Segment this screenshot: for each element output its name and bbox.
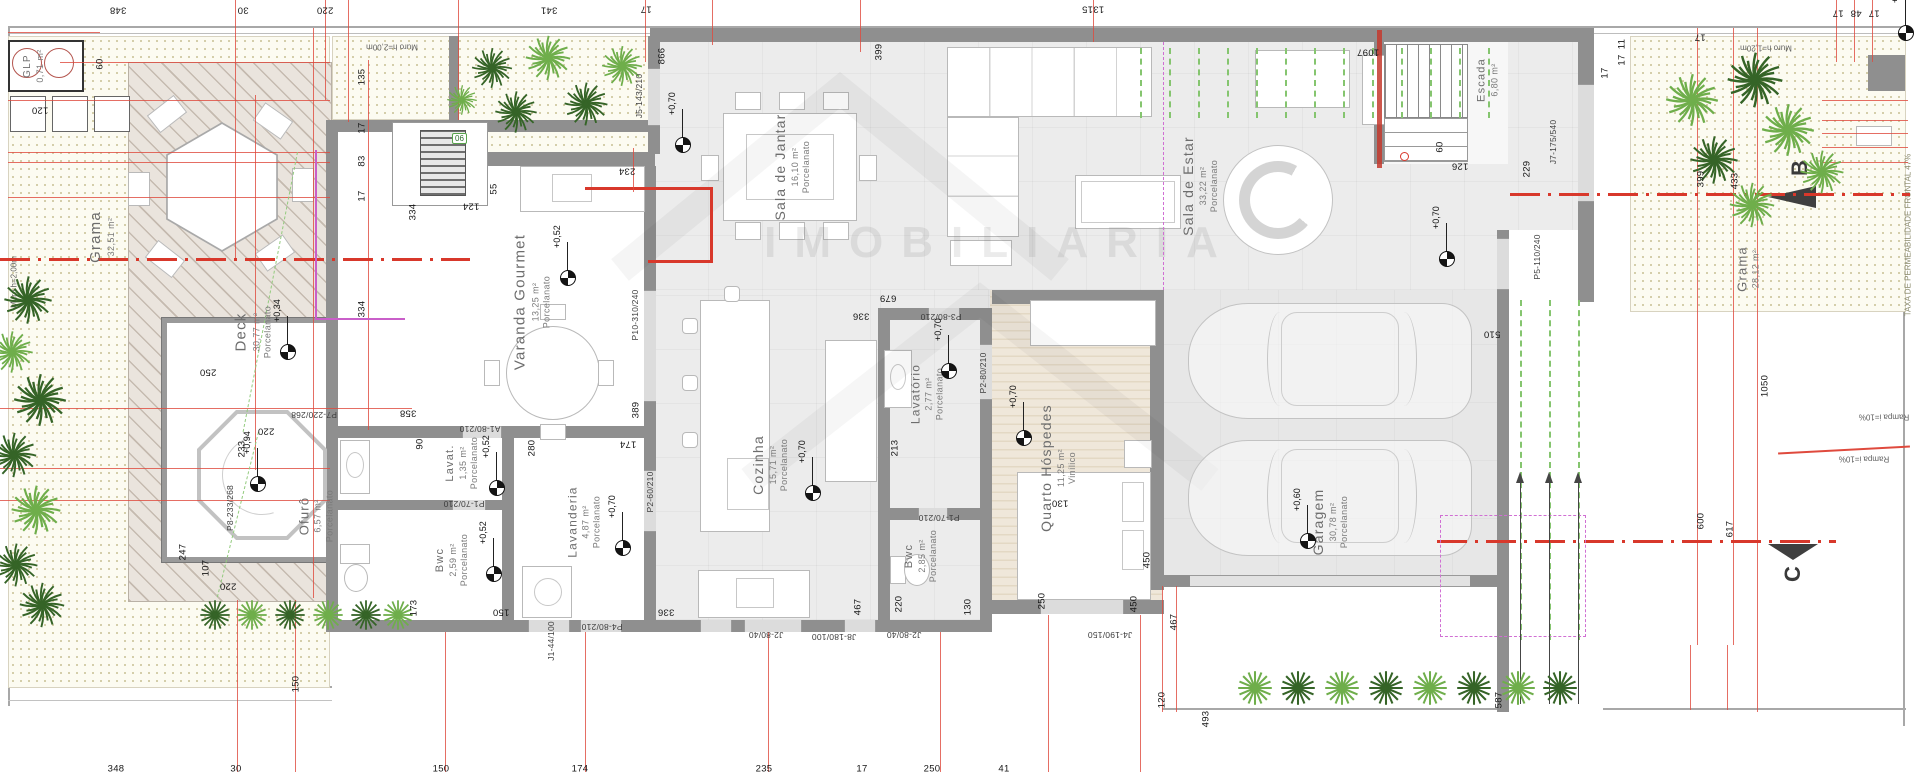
dimension-line <box>1727 645 1728 710</box>
dimension-label: 17 <box>1600 67 1611 78</box>
opening-label: P1-70/210 <box>918 513 959 523</box>
palm-tree-icon <box>1657 65 1727 135</box>
section-c-label: C <box>1780 566 1806 582</box>
dimension-label: 220 <box>258 426 275 437</box>
bush-icon <box>1406 664 1454 712</box>
stair-return <box>1384 118 1468 162</box>
dimension-line <box>8 100 330 101</box>
level-value: +0,70 <box>797 440 807 463</box>
wall <box>326 132 338 632</box>
room-area: 30,78 m² <box>1328 489 1339 556</box>
room-floor-finish: Porcelanato <box>592 486 603 557</box>
projection-outline <box>1440 515 1586 637</box>
section-line <box>0 258 470 261</box>
level-value: +0,94 <box>242 431 252 454</box>
room-floor-finish: Porcelanato <box>1209 136 1220 236</box>
dimension-line <box>1690 645 1691 710</box>
room-name: Sala de Estar <box>1180 136 1198 236</box>
level-value: +0,70 <box>1431 206 1441 229</box>
dimension-label: 30 <box>237 5 248 16</box>
dimension-label: 348 <box>110 5 127 16</box>
room-label: Escada6,80 m² <box>1476 58 1501 102</box>
room-floor-finish: Porcelanato <box>324 490 335 542</box>
room-label: GLP0,71 m² <box>22 49 46 82</box>
level-value: +0,9 <box>1890 0 1900 3</box>
planting-guide-line <box>1430 48 1432 118</box>
dimension-label: 107 <box>201 560 212 577</box>
window-j2 <box>844 620 876 632</box>
dimension-label: 135 <box>357 69 368 86</box>
dimension-label: 41 <box>998 764 1009 774</box>
room-area: 0,71 m² <box>35 49 46 82</box>
dimension-label: 341 <box>541 5 558 16</box>
dimension-label: 334 <box>408 204 419 221</box>
section-c-arrow-icon <box>1768 544 1818 560</box>
dimension-label: 55 <box>489 183 500 194</box>
dimension-label: 83 <box>357 155 368 166</box>
wall <box>502 438 514 632</box>
dimension-label: 600 <box>1696 513 1707 530</box>
room-area: 1,35 m² <box>458 437 469 489</box>
opening-label: J7-175/540 <box>1548 120 1558 165</box>
dimension-label: 126 <box>1452 161 1469 172</box>
washer-door <box>534 578 562 606</box>
wall-height-label: Muro h=2,00m <box>366 43 418 52</box>
furniture-tag: 06 <box>452 133 467 144</box>
dimension-label: 17 <box>1617 54 1628 65</box>
room-area: 6,80 m² <box>1489 58 1500 102</box>
dimension-label: 617 <box>1725 521 1736 538</box>
planting-guide-line <box>1198 48 1200 118</box>
room-floor-finish: Porcelanato <box>928 530 939 582</box>
room-name: Deck <box>232 306 251 358</box>
dimension-label: 17 <box>1868 8 1879 19</box>
dimension-label: 493 <box>1201 711 1212 728</box>
level-value: +0,52 <box>552 225 562 248</box>
dimension-label: 173 <box>409 600 420 617</box>
dimension-label: 60 <box>95 58 106 69</box>
room-area: 2,59 m² <box>448 534 459 586</box>
room-label: Grama32,51 m² <box>87 211 117 263</box>
room-label: Bwc2,59 m²Porcelanato <box>434 534 470 586</box>
room-label: Ofurô6,57 m²Porcelanato <box>297 490 336 542</box>
room-floor-finish: Porcelanato <box>459 534 470 586</box>
room-label: Varanda Gourmet13,25 m²Porcelanato <box>511 234 552 370</box>
dimension-label: 280 <box>527 440 538 457</box>
room-label: Quarto Hóspedes11,25 m²Vinílico <box>1038 404 1078 532</box>
opening-label: J4-190/150 <box>1088 630 1133 640</box>
dimension-label: 213 <box>890 440 901 457</box>
opening-label: P2-80/210 <box>978 352 988 393</box>
dimension-label: 120 <box>1157 692 1168 709</box>
room-area: 13,25 m² <box>530 234 541 370</box>
room-name: Varanda Gourmet <box>511 234 530 370</box>
dimension-label: 450 <box>1129 596 1140 613</box>
room-name: Lavat. <box>444 437 458 489</box>
opening-label: J1-44/100 <box>546 621 556 661</box>
opening-label: J2-80/40 <box>887 630 922 640</box>
opening-label: J2-80/40 <box>749 630 784 640</box>
window-j7 <box>1578 84 1594 202</box>
stair-section-tag <box>1400 152 1409 161</box>
palm-tree-icon <box>3 477 69 543</box>
room-area: 33,22 m² <box>1198 136 1209 236</box>
entry-pillar <box>1868 55 1905 91</box>
dimension-label: 336 <box>853 311 870 322</box>
dimension-label: 174 <box>620 439 637 450</box>
dimension-label: 250 <box>200 367 217 378</box>
kitchen-sink <box>736 578 774 608</box>
dimension-label: 587 <box>1494 692 1505 709</box>
room-name: Quarto Hóspedes <box>1038 404 1056 532</box>
dimension-label: 510 <box>1484 329 1501 340</box>
bush-icon <box>231 594 273 636</box>
dimension-label: 234 <box>619 166 636 177</box>
room-area: 2,85 m² <box>917 530 928 582</box>
planting-guide-line <box>1256 48 1258 118</box>
room-name: Cozinha <box>750 435 768 495</box>
room-floor-finish: Porcelanato <box>801 113 812 220</box>
planting-guide-line <box>1459 48 1461 118</box>
dimension-label: 399 <box>1696 171 1707 188</box>
level-value: +0,70 <box>1008 385 1018 408</box>
dimension-label: 467 <box>853 599 864 616</box>
dimension-label: 334 <box>357 301 368 318</box>
level-value: +0,52 <box>481 435 491 458</box>
projection-line <box>315 318 405 320</box>
dimension-label: 120 <box>32 105 49 116</box>
opening-label: J5-143/210 <box>634 74 644 119</box>
dimension-label: 389 <box>631 402 642 419</box>
dimension-label: 17 <box>357 190 368 201</box>
dimension-label: 220 <box>220 581 237 592</box>
section-line-segment <box>648 260 713 263</box>
dimension-label: 17 <box>856 764 867 774</box>
dimension-label: 17 <box>1694 32 1705 43</box>
planter-box <box>94 96 130 132</box>
palm-tree-icon <box>442 80 482 120</box>
room-label: Bwc2,85 m²Porcelanato <box>903 530 939 582</box>
level-value: +0,60 <box>1292 488 1302 511</box>
dimension-line <box>0 468 330 469</box>
room-name: GLP <box>22 49 35 82</box>
planter-box <box>52 96 88 132</box>
room-area: 32,51 m² <box>106 211 117 263</box>
dimension-label: 60 <box>1435 141 1446 152</box>
permeability-note: TAXA DE PERMEABILIDADE FRONTAL 47% <box>1904 154 1913 317</box>
planting-guide-line <box>1343 48 1345 118</box>
room-floor-finish: Porcelanato <box>541 234 552 370</box>
room-area: 2,77 m² <box>923 364 934 424</box>
dimension-label: 1050 <box>1760 375 1771 397</box>
dimension-line <box>8 197 330 198</box>
palm-tree-icon <box>0 268 60 332</box>
dimension-line <box>1140 615 1141 772</box>
dimension-label: 336 <box>658 607 675 618</box>
planting-guide-line <box>1372 48 1374 118</box>
opening-label: P8-233/268 <box>225 485 235 531</box>
sidewalk-line <box>8 700 332 701</box>
dimension-label: 17 <box>640 4 651 15</box>
dimension-label: 11 <box>1617 39 1628 49</box>
chair <box>484 360 500 386</box>
window-j2 <box>700 620 732 632</box>
dimension-label: 399 <box>874 44 885 61</box>
bush-icon <box>307 594 349 636</box>
ramp-label: Rampa i=10% <box>1839 455 1889 464</box>
room-floor-finish: Vinílico <box>1067 404 1078 532</box>
room-name: Grama <box>87 211 106 263</box>
bush-icon <box>1450 664 1498 712</box>
dimension-label: 866 <box>657 48 668 65</box>
projection-line <box>1163 42 1164 290</box>
planting-guide-line <box>1169 48 1171 118</box>
planting-guide-line <box>1227 48 1229 118</box>
dimension-label: 247 <box>178 544 189 561</box>
dimension-label: 450 <box>1142 552 1153 569</box>
bush-icon <box>1274 664 1322 712</box>
planting-guide-line <box>1285 48 1287 118</box>
room-floor-finish: Porcelanato <box>1339 489 1350 556</box>
room-area: 11,25 m² <box>1056 404 1067 532</box>
palm-tree-icon <box>0 425 44 485</box>
room-label: Cozinha15,71 m²Porcelanato <box>750 435 790 495</box>
toilet-bowl <box>344 564 368 592</box>
opening-label: P7-220/268 <box>291 410 337 420</box>
dimension-label: 48 <box>1850 8 1861 19</box>
planting-guide-line <box>1140 48 1142 118</box>
dimension-label: 358 <box>400 408 417 419</box>
opening-label: A1-80/210 <box>459 424 500 434</box>
dimension-line <box>8 162 330 163</box>
dimension-label: 220 <box>894 596 905 613</box>
dimension-label: 150 <box>291 676 302 693</box>
dimension-label: 124 <box>463 201 480 212</box>
opening-label: P4-80/210 <box>581 622 622 632</box>
dimension-line <box>348 0 349 122</box>
car-cabin <box>1281 312 1399 406</box>
section-line-segment <box>710 187 713 263</box>
dimension-line <box>768 632 769 772</box>
room-floor-finish: Porcelanato <box>779 435 790 495</box>
dimension-label: 90 <box>415 438 426 449</box>
ramp-label: Rampa i=10% <box>1859 413 1909 422</box>
room-area: 15,71 m² <box>768 435 779 495</box>
dimension-label: 150 <box>433 764 450 774</box>
dimension-label: 467 <box>1169 614 1180 631</box>
room-name: Lavanderia <box>565 486 580 557</box>
dimension-line <box>860 0 861 52</box>
car-icon <box>1185 300 1475 422</box>
dimension-line <box>1048 615 1049 772</box>
opening-label: P5-110/240 <box>1532 234 1542 279</box>
dimension-line <box>1176 586 1177 712</box>
palm-tree-icon <box>488 84 544 140</box>
dimension-label: 433 <box>1730 173 1741 190</box>
window-j4 <box>1040 600 1124 614</box>
bush-icon <box>269 594 311 636</box>
door-p5 <box>1497 238 1509 290</box>
level-value: +0,70 <box>667 92 677 115</box>
dimension-line <box>585 632 586 772</box>
room-name: Lavatório <box>908 364 923 424</box>
room-label: Lavanderia4,87 m²Porcelanato <box>565 486 603 557</box>
bush-icon <box>1318 664 1366 712</box>
dimension-label: 220 <box>317 5 334 16</box>
bush-icon <box>1231 664 1279 712</box>
palm-tree-icon <box>1793 143 1851 201</box>
dimension-label: 250 <box>924 764 941 774</box>
room-floor-finish: Porcelanato <box>469 437 480 489</box>
entry-gate <box>1856 126 1892 146</box>
dimension-label: 17 <box>1832 8 1843 19</box>
dimension-line <box>445 632 446 772</box>
dimension-label: 150 <box>493 607 510 618</box>
opening-label: P2-60/210 <box>645 471 655 512</box>
room-area: 4,87 m² <box>580 486 591 557</box>
room-name: Escada <box>1476 58 1490 102</box>
dimension-label: 250 <box>1037 593 1048 610</box>
room-label: Garagem30,78 m²Porcelanato <box>1310 489 1350 556</box>
bush-icon <box>1362 664 1410 712</box>
basin <box>346 452 364 478</box>
dimension-line <box>712 0 713 45</box>
palm-tree-icon <box>12 575 72 635</box>
dimension-label: 130 <box>1052 498 1069 509</box>
walkway-right <box>1594 42 1630 312</box>
dimension-label: 235 <box>756 764 773 774</box>
projection-line <box>315 150 317 320</box>
opening-label: P10-310/240 <box>630 290 640 341</box>
ramp-leader-line <box>1778 446 1910 454</box>
dimension-label: 30 <box>230 764 241 774</box>
bush-icon <box>1536 664 1584 712</box>
dimension-label: 17 <box>357 122 368 133</box>
planting-guide-line <box>1401 48 1403 118</box>
opening-label: P1-70/210 <box>443 499 484 509</box>
room-name: Bwc <box>903 530 917 582</box>
dimension-line <box>1822 100 1908 101</box>
toilet-tank <box>340 544 370 564</box>
dimension-label: 229 <box>1522 161 1533 178</box>
room-label: Lavat.1,35 m²Porcelanato <box>444 437 480 489</box>
room-label: Sala de Estar33,22 m²Porcelanato <box>1180 136 1220 236</box>
garage-door-opening <box>1190 575 1470 587</box>
dimension-line <box>368 60 369 430</box>
dimension-line <box>8 32 100 33</box>
level-value: +0,34 <box>272 299 282 322</box>
room-area: 16,10 m² <box>790 113 801 220</box>
room-name: Bwc <box>434 534 448 586</box>
level-value: +0,70 <box>607 495 617 518</box>
papasan-chair <box>1223 145 1333 255</box>
room-area: 6,57 m² <box>313 490 324 542</box>
gas-cylinder-icon <box>44 48 74 78</box>
wall <box>1497 230 1509 712</box>
room-label: Grama28,12 m² <box>1734 246 1762 292</box>
deck-chair <box>128 172 150 206</box>
dimension-line <box>8 152 330 153</box>
room-area: 30,77 m² <box>251 306 262 358</box>
dimension-label: 348 <box>108 764 125 774</box>
dimension-label: 1315 <box>1082 4 1104 15</box>
room-name: Grama <box>1734 246 1750 292</box>
level-value: +0,52 <box>478 521 488 544</box>
dimension-label: 130 <box>963 599 974 616</box>
dimension-line <box>1822 133 1908 134</box>
dimension-line <box>1822 120 1908 121</box>
dimension-line <box>940 632 941 772</box>
room-name: Sala de Jantar <box>772 113 790 220</box>
room-label: Sala de Jantar16,10 m²Porcelanato <box>772 113 812 220</box>
floor-plan-canvas: IMOBILIARIA B C Muro h=2,00m Muro h=1,20… <box>0 0 1920 774</box>
room-name: Ofurô <box>297 490 313 542</box>
dimension-line <box>235 0 236 260</box>
section-line-segment <box>585 187 713 190</box>
dimension-label: 174 <box>572 764 589 774</box>
dimension-label: 679 <box>880 293 897 304</box>
stair-treads <box>1384 44 1468 118</box>
level-value: +0,70 <box>933 318 943 341</box>
room-area: 28,12 m² <box>1751 246 1762 292</box>
opening-label: J8-180/100 <box>812 632 857 642</box>
dimension-line <box>1733 28 1734 645</box>
room-label: Deck30,77 m²Porcelanato <box>232 306 273 358</box>
room-label: Lavatório2,77 m²Porcelanato <box>908 364 946 424</box>
planting-guide-line <box>1314 48 1316 118</box>
bush-icon <box>194 594 236 636</box>
dimension-label: 1097 <box>1357 47 1379 58</box>
